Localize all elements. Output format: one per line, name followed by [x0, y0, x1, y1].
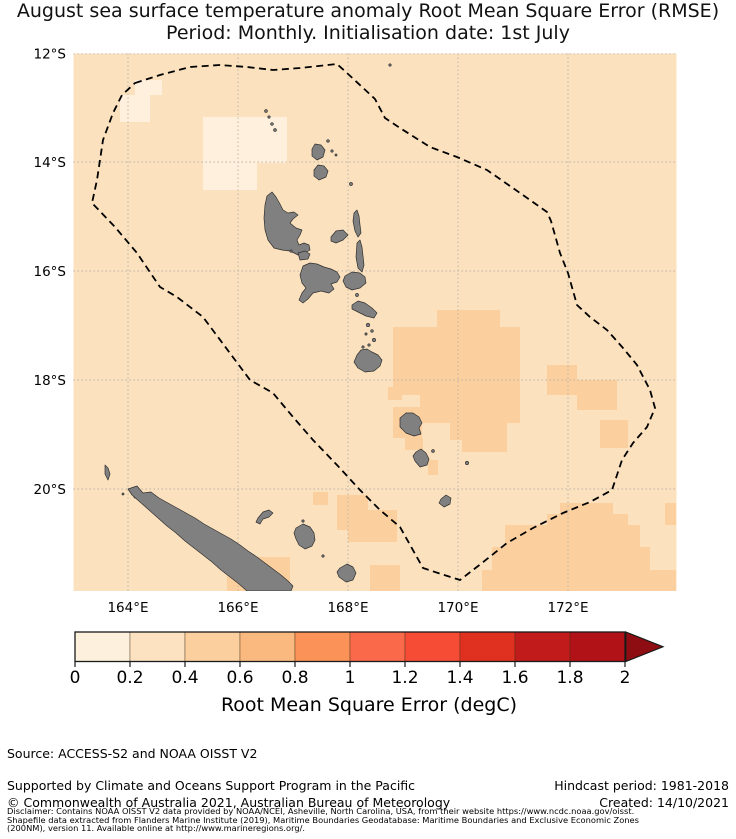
lat-label-16s: 16°S	[34, 264, 67, 280]
lon-label-164e: 164°E	[107, 600, 148, 616]
lon-label-172e: 172°E	[547, 600, 588, 616]
lon-axis: 164°E 166°E 168°E 170°E 172°E	[107, 600, 588, 616]
svg-text:1.8: 1.8	[556, 668, 583, 688]
svg-text:1: 1	[345, 668, 356, 688]
lon-label-168e: 168°E	[327, 600, 368, 616]
figure-canvas: { "title": { "line1": "August sea surfac…	[0, 0, 736, 839]
figure-title: August sea surface temperature anomaly R…	[17, 1, 719, 22]
svg-text:0.2: 0.2	[116, 668, 143, 688]
svg-text:1.6: 1.6	[501, 668, 528, 688]
svg-text:0.4: 0.4	[171, 668, 198, 688]
svg-text:1.4: 1.4	[446, 668, 473, 688]
lon-label-170e: 170°E	[437, 600, 478, 616]
disclaimer-line-3: (200NM), version 11. Available online at…	[7, 824, 639, 833]
colorbar-ticks	[75, 662, 625, 668]
source-note: Source: ACCESS-S2 and NOAA OISST V2	[7, 746, 257, 761]
colorbar-tick-labels: 0 0.2 0.4 0.6 0.8 1 1.2 1.4 1.6 1.8 2	[70, 668, 631, 688]
colorbar: 0 0.2 0.4 0.6 0.8 1 1.2 1.4 1.6 1.8 2 Ro…	[70, 632, 663, 716]
lon-label-166e: 166°E	[217, 600, 258, 616]
colorbar-arrow	[626, 632, 663, 662]
svg-text:2: 2	[620, 668, 631, 688]
colorbar-segments	[75, 632, 625, 662]
lat-label-18s: 18°S	[34, 373, 67, 389]
supported-by-note: Supported by Climate and Oceans Support …	[7, 778, 415, 793]
lat-label-14s: 14°S	[34, 155, 67, 171]
map-figure: 12°S 14°S 16°S 18°S 20°S 164°E 166°E 168…	[0, 0, 736, 839]
lat-label-12s: 12°S	[34, 47, 67, 63]
disclaimer: Disclaimer: Contains NOAA OISST V2 data …	[7, 807, 639, 833]
figure-subtitle: Period: Monthly. Initialisation date: 1s…	[166, 23, 570, 44]
svg-text:0.6: 0.6	[226, 668, 253, 688]
colorbar-label: Root Mean Square Error (degC)	[221, 694, 517, 716]
lat-axis: 12°S 14°S 16°S 18°S 20°S	[34, 47, 67, 499]
svg-text:1.2: 1.2	[391, 668, 418, 688]
svg-text:0: 0	[70, 668, 81, 688]
lat-label-20s: 20°S	[34, 482, 67, 498]
svg-text:0.8: 0.8	[281, 668, 308, 688]
hindcast-period-note: Hindcast period: 1981-2018	[554, 778, 729, 793]
